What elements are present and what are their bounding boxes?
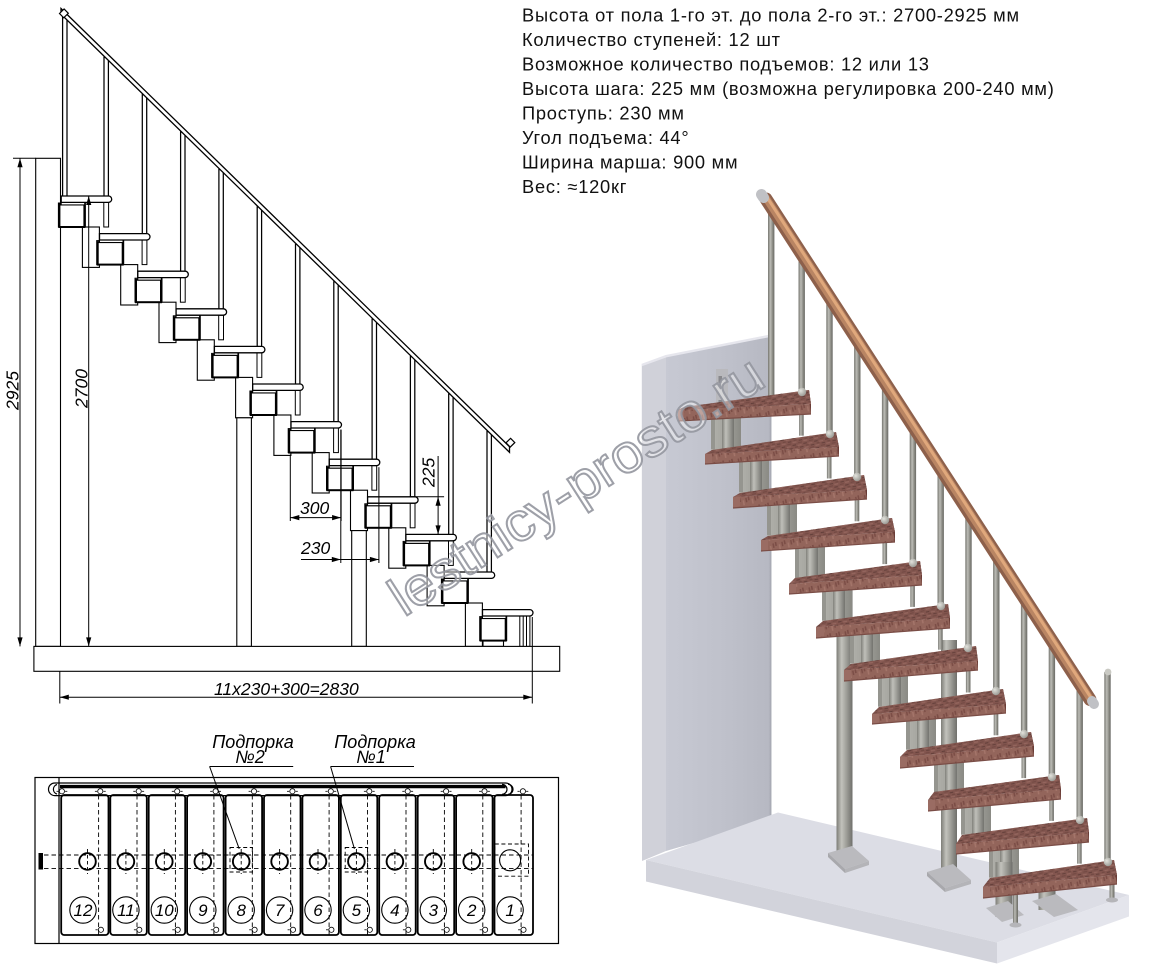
- svg-text:12: 12: [74, 901, 93, 920]
- svg-text:300: 300: [300, 498, 329, 518]
- svg-text:6: 6: [313, 901, 323, 920]
- svg-text:Возможное количество подъемов:: Возможное количество подъемов: 12 или 13: [522, 54, 930, 75]
- svg-text:Вес: ≈120кг: Вес: ≈120кг: [522, 176, 627, 197]
- svg-text:Количество ступеней: 12 шт: Количество ступеней: 12 шт: [522, 29, 781, 50]
- svg-text:№2: №2: [235, 747, 265, 767]
- svg-text:2: 2: [466, 901, 477, 920]
- svg-text:Проступь: 230 мм: Проступь: 230 мм: [522, 103, 685, 124]
- svg-text:11: 11: [117, 901, 135, 920]
- svg-text:Высота от пола 1-го эт. до пол: Высота от пола 1-го эт. до пола 2-го эт.…: [522, 5, 1020, 26]
- svg-text:2925: 2925: [3, 371, 23, 411]
- svg-text:11x230+300=2830: 11x230+300=2830: [214, 679, 359, 699]
- svg-text:8: 8: [236, 901, 246, 920]
- svg-text:2700: 2700: [72, 369, 92, 409]
- svg-text:7: 7: [275, 901, 285, 920]
- svg-text:1: 1: [505, 901, 514, 920]
- svg-text:Ширина марша: 900 мм: Ширина марша: 900 мм: [522, 152, 738, 173]
- svg-text:Высота шага: 225 мм (возможна: Высота шага: 225 мм (возможна регулировк…: [522, 78, 1055, 99]
- svg-text:9: 9: [198, 901, 208, 920]
- svg-text:4: 4: [390, 901, 399, 920]
- svg-text:10: 10: [155, 901, 174, 920]
- svg-text:230: 230: [300, 538, 330, 558]
- svg-text:3: 3: [429, 901, 439, 920]
- svg-text:Угол подъема: 44°: Угол подъема: 44°: [522, 127, 689, 148]
- svg-text:5: 5: [352, 901, 362, 920]
- svg-text:№1: №1: [356, 747, 386, 767]
- svg-text:225: 225: [419, 458, 439, 488]
